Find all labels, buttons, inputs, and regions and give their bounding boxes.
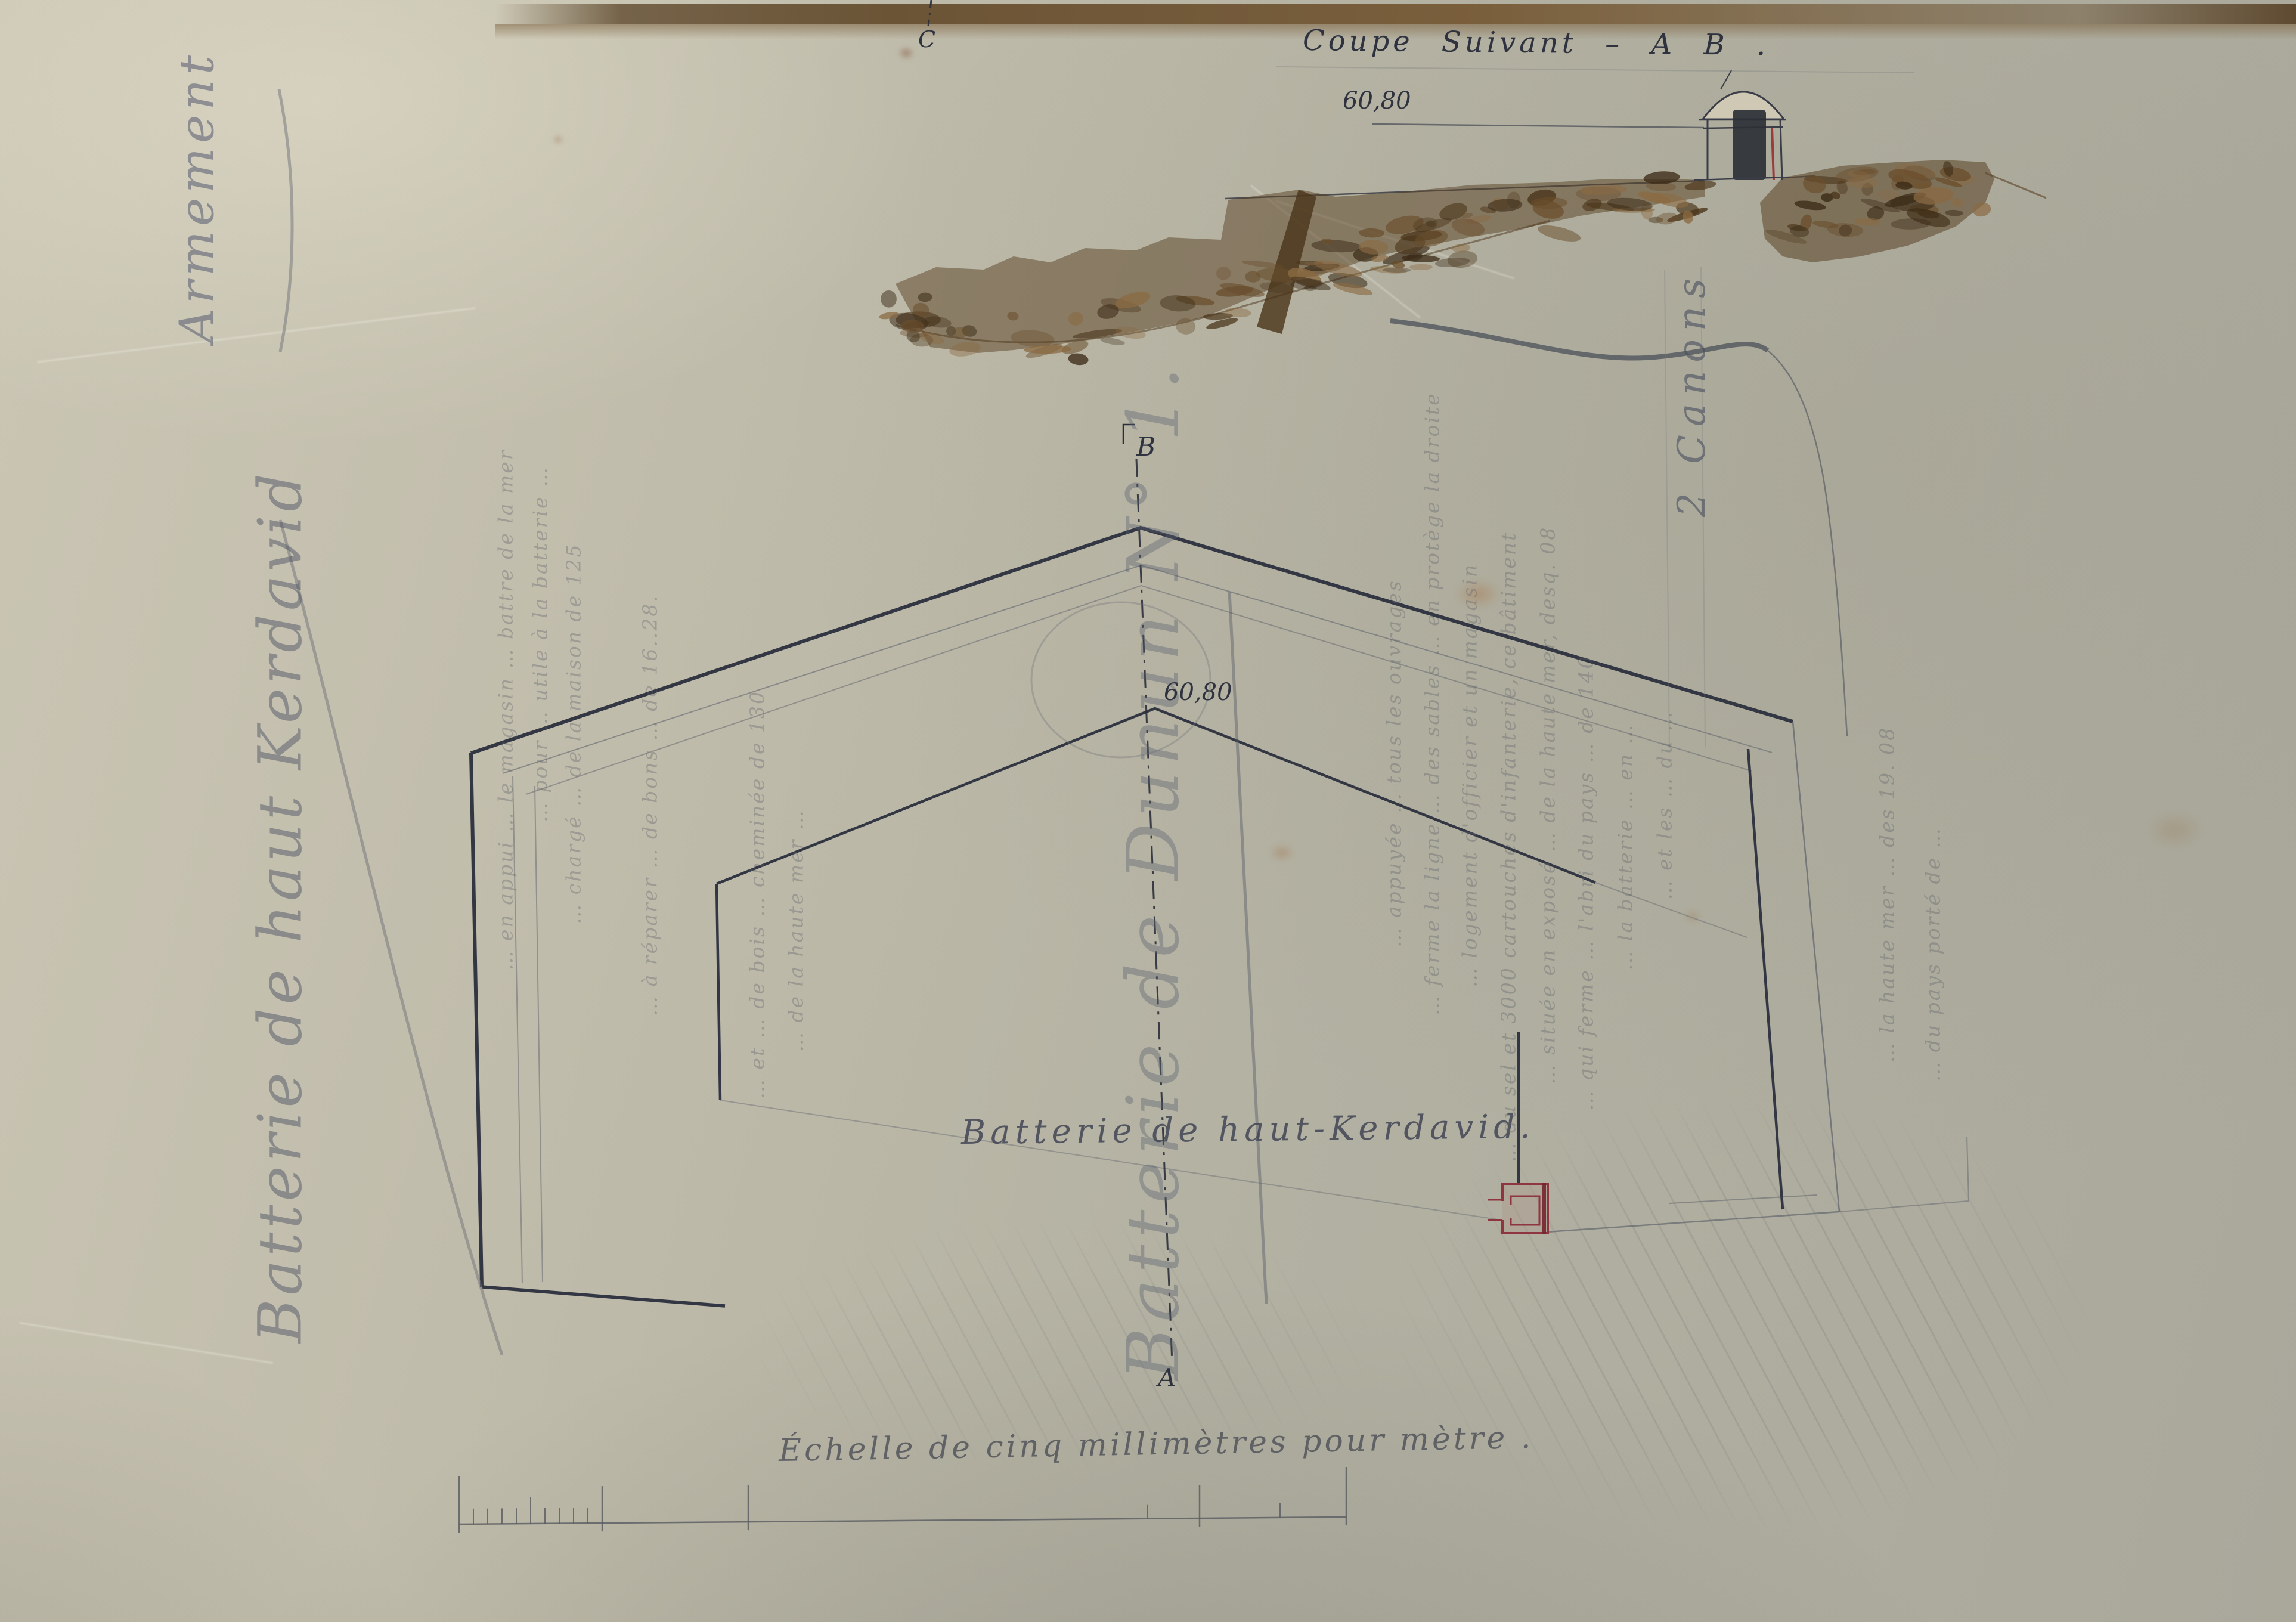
point-c-label: C — [918, 26, 935, 52]
sentry-box-red-accent — [1772, 128, 1774, 180]
rubble-tail-line — [1985, 173, 2046, 198]
ghost-fragment-right: … logement d'officier et un magasin — [1458, 563, 1482, 988]
ghost-fragment-right: … la haute mer … des 19. 08 — [1876, 726, 1899, 1063]
magazine-fill — [1502, 1184, 1548, 1233]
coupe-section — [879, 67, 2046, 366]
outer-rampart-right-flank-pencil — [1793, 722, 1839, 1212]
coupe-title: Coupe Suivant – A B . — [1303, 24, 1770, 62]
ghost-fragment-right: … la batterie … en … — [1614, 723, 1637, 970]
ghost-long-stroke — [1229, 592, 1266, 1304]
ghost-fragment-left: … pour … utile à la batterie … — [529, 466, 552, 822]
graphic-scale-bar — [459, 1467, 1346, 1533]
ghost-fragment-right: … et les … du … — [1653, 710, 1677, 900]
rubble-stone — [1067, 352, 1089, 366]
rubble-stone — [881, 290, 897, 308]
ghost-fragment-right: … ferme la ligne … des sables … en protè… — [1421, 392, 1444, 1016]
plan-level-label: 60,80 — [1164, 679, 1232, 706]
bottom-right-pencil-line-2 — [1669, 1195, 1817, 1203]
rubble-stone — [1656, 212, 1679, 226]
ghost-fragment-left: … et … de bois … cheminée de 130 — [746, 690, 769, 1099]
ghost-fragment-left: … chargé … de la maison de 125 — [562, 543, 585, 924]
inner-parapet-right-wall-ink — [1748, 749, 1783, 1209]
ghost-fragment-left: … à réparer … de bons … de 16..28. — [639, 594, 662, 1016]
bottom-right-step-lines — [1839, 1137, 1969, 1212]
sentry-box-cap-tick — [1721, 70, 1731, 89]
ghost-fragment-right: … du pays porté de … — [1922, 827, 1945, 1081]
point-a-label: A — [1158, 1363, 1176, 1392]
armament-note: 2 Canons — [1670, 270, 1714, 517]
ghost-fragment-right: … située en exposé … de la haute mer, de… — [1536, 526, 1560, 1085]
ghost-axis-inscription: Batterie de Dunun N° 1. — [1113, 361, 1195, 1380]
point-b-label: B — [1136, 432, 1155, 462]
armement-flourish — [279, 89, 292, 352]
sentry-box-door — [1733, 110, 1766, 180]
ghost-fragment-left: … en appui … le magasin … battre de la m… — [494, 448, 518, 970]
magazine-door-ticks — [1488, 1200, 1502, 1220]
manuscript-page: Armement Batterie de haut Kerdavid Batte… — [0, 0, 2296, 1622]
rubble-stone — [1409, 264, 1433, 271]
bottom-right-pencil-line — [1547, 1212, 1839, 1232]
ghost-fragment-right: … appuyée … tous les ouvrages — [1383, 579, 1406, 947]
ghost-fragment-right: … du sel et 3000 cartouches d'infanterie… — [1497, 531, 1520, 1163]
margin-heading-armement: Armement — [169, 51, 225, 343]
outer-rampart-left-wall — [471, 753, 482, 1287]
inner-parapet-left-wall — [513, 776, 543, 1283]
powder-magazine-symbol — [1488, 1183, 1548, 1234]
sentry-box — [1694, 70, 1790, 180]
ghost-fragment-right: … qui ferme … l'abri du pays … de 140 — [1575, 655, 1598, 1111]
water-level-line — [1372, 124, 1704, 128]
outer-rampart-bottom-left — [482, 1287, 725, 1306]
ghost-fragment-left: … de la haute mer … — [785, 809, 808, 1052]
scale-bar-line — [459, 1517, 1346, 1524]
margin-title-battery: Batterie de haut Kerdavid — [246, 470, 315, 1343]
section-axis-C — [928, 0, 931, 26]
plan-center-label: Batterie de haut-Kerdavid. — [961, 1107, 1535, 1152]
rubble-stone — [1536, 222, 1582, 244]
platform-left-wall — [717, 884, 720, 1100]
coupe-level-label: 60,80 — [1343, 87, 1411, 114]
pencil-guide-line — [1276, 67, 1914, 73]
grand-swoosh-tail — [1768, 351, 1847, 736]
